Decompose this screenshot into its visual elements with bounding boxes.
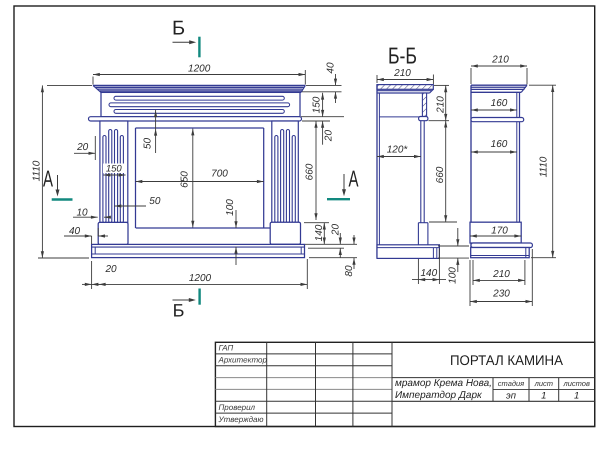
svg-text:120*: 120* (387, 145, 409, 156)
svg-text:эп: эп (506, 391, 517, 402)
svg-text:стадия: стадия (498, 379, 524, 388)
svg-text:20: 20 (104, 264, 117, 275)
svg-text:210: 210 (491, 55, 509, 66)
svg-text:230: 230 (492, 289, 510, 300)
svg-text:80: 80 (344, 265, 355, 277)
svg-text:660: 660 (305, 163, 316, 180)
svg-text:Императдор Дарк: Императдор Дарк (395, 390, 483, 401)
svg-text:20: 20 (76, 142, 89, 153)
svg-text:Архитектор: Архитектор (218, 355, 268, 364)
svg-text:20: 20 (323, 130, 334, 143)
svg-text:1: 1 (574, 391, 579, 402)
svg-text:ПОРТАЛ КАМИНА: ПОРТАЛ КАМИНА (450, 352, 564, 368)
svg-text:ГАП: ГАП (219, 344, 234, 353)
svg-text:100: 100 (448, 267, 459, 284)
svg-text:1110: 1110 (32, 160, 43, 181)
svg-text:1200: 1200 (189, 273, 212, 284)
svg-text:50: 50 (149, 196, 161, 207)
svg-text:Б: Б (173, 301, 185, 321)
svg-text:210: 210 (435, 96, 446, 114)
svg-text:Утверждаю: Утверждаю (218, 415, 264, 424)
svg-text:А: А (43, 166, 53, 192)
svg-text:1110: 1110 (538, 156, 549, 177)
svg-text:листов: листов (562, 379, 589, 388)
svg-text:660: 660 (435, 166, 446, 183)
svg-text:20: 20 (330, 224, 341, 237)
svg-text:210: 210 (492, 269, 510, 280)
svg-text:210: 210 (393, 68, 411, 79)
svg-text:650: 650 (179, 171, 190, 188)
svg-text:Проверил: Проверил (219, 403, 256, 412)
svg-text:1200: 1200 (188, 64, 211, 75)
svg-text:А: А (349, 165, 359, 191)
svg-text:160: 160 (491, 98, 508, 109)
svg-text:Б-Б: Б-Б (388, 43, 417, 69)
svg-text:50: 50 (142, 138, 153, 150)
svg-text:100: 100 (225, 199, 236, 216)
svg-text:150: 150 (106, 163, 123, 174)
svg-text:10: 10 (76, 207, 88, 218)
svg-text:140: 140 (420, 268, 437, 279)
svg-text:1: 1 (541, 391, 546, 402)
svg-text:700: 700 (211, 169, 228, 180)
svg-text:40: 40 (325, 62, 336, 74)
svg-text:160: 160 (491, 139, 508, 150)
svg-text:170: 170 (491, 226, 508, 237)
svg-text:лист: лист (534, 379, 553, 388)
svg-text:140: 140 (314, 224, 325, 241)
svg-text:150: 150 (312, 96, 323, 113)
svg-text:мрамор Крема Нова,: мрамор Крема Нова, (395, 378, 492, 389)
svg-text:Б: Б (172, 18, 185, 40)
svg-text:40: 40 (69, 226, 81, 237)
